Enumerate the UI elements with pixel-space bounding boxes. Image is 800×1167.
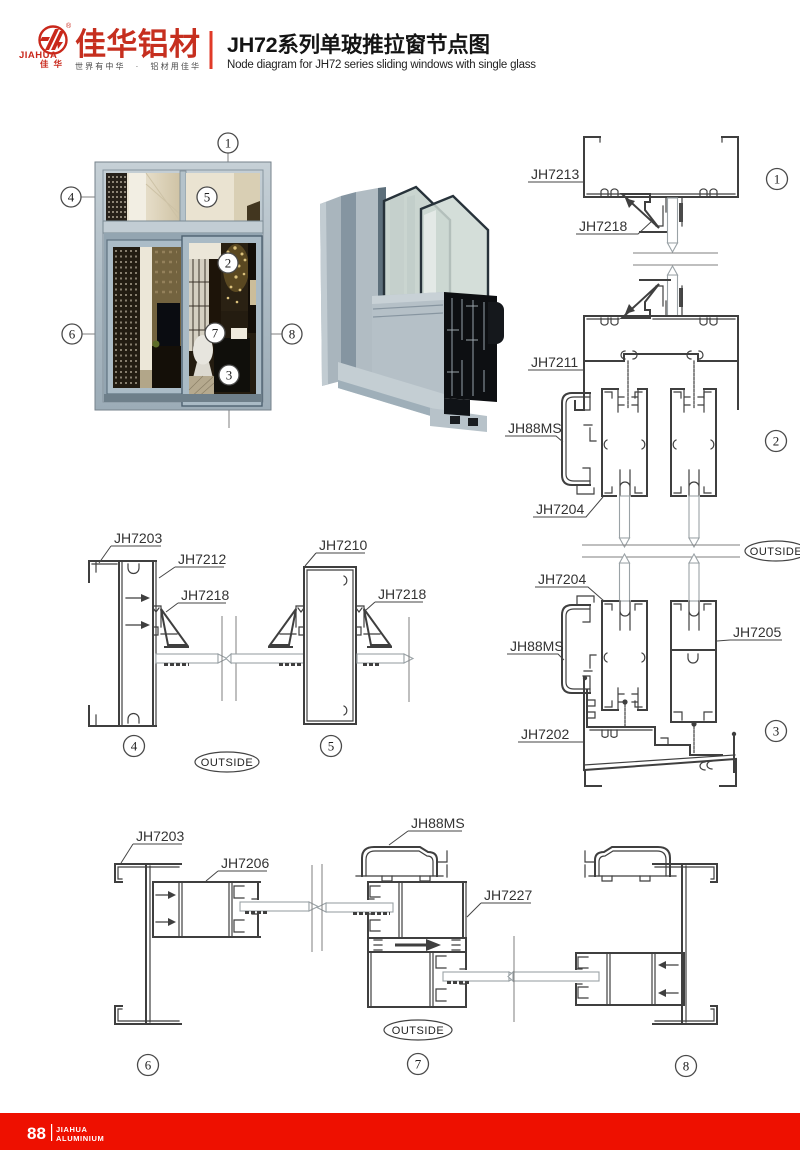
svg-text:JH88MS: JH88MS <box>510 638 564 654</box>
svg-text:7: 7 <box>212 326 219 341</box>
svg-text:JH72系列单玻推拉窗节点图: JH72系列单玻推拉窗节点图 <box>227 32 490 57</box>
svg-text:5: 5 <box>204 190 211 205</box>
svg-text:JH7205: JH7205 <box>733 624 781 640</box>
svg-text:JH7212: JH7212 <box>178 551 226 567</box>
svg-text:3: 3 <box>226 368 233 383</box>
svg-text:JH7210: JH7210 <box>319 537 367 553</box>
svg-text:JH7204: JH7204 <box>538 571 586 587</box>
svg-text:8: 8 <box>289 327 296 342</box>
svg-text:JH7206: JH7206 <box>221 855 269 871</box>
svg-text:JH7202: JH7202 <box>521 726 569 742</box>
svg-text:JH7211: JH7211 <box>531 354 578 370</box>
svg-text:JIAHUA: JIAHUA <box>56 1125 88 1134</box>
svg-text:JH7218: JH7218 <box>181 587 229 603</box>
svg-text:4: 4 <box>131 739 138 754</box>
svg-text:JH7203: JH7203 <box>114 530 162 546</box>
svg-text:佳华铝材: 佳华铝材 <box>75 27 200 62</box>
svg-text:3: 3 <box>773 724 780 739</box>
svg-text:JH88MS: JH88MS <box>508 420 562 436</box>
svg-text:8: 8 <box>683 1059 690 1074</box>
svg-text:2: 2 <box>225 256 232 271</box>
svg-text:佳华: 佳华 <box>40 59 67 69</box>
svg-text:7: 7 <box>415 1057 422 1072</box>
svg-text:OUTSIDE: OUTSIDE <box>392 1025 444 1037</box>
svg-text:1: 1 <box>774 172 781 187</box>
svg-text:JH7227: JH7227 <box>484 887 532 903</box>
svg-text:1: 1 <box>225 136 232 151</box>
svg-text:JH7218: JH7218 <box>579 218 627 234</box>
svg-text:JH7203: JH7203 <box>136 828 184 844</box>
svg-text:JH7204: JH7204 <box>536 501 584 517</box>
svg-text:®: ® <box>66 22 72 30</box>
svg-text:2: 2 <box>773 434 780 449</box>
svg-text:OUTSIDE: OUTSIDE <box>201 757 253 769</box>
svg-text:ALUMINIUM: ALUMINIUM <box>56 1134 104 1143</box>
svg-text:世界有中华 · 铝材用佳华: 世界有中华 · 铝材用佳华 <box>75 61 199 71</box>
svg-text:4: 4 <box>68 190 75 205</box>
svg-text:JH88MS: JH88MS <box>411 815 465 831</box>
svg-text:6: 6 <box>145 1058 152 1073</box>
svg-text:5: 5 <box>328 739 335 754</box>
svg-text:6: 6 <box>69 327 76 342</box>
svg-text:JH7218: JH7218 <box>378 586 426 602</box>
svg-text:88: 88 <box>27 1124 46 1143</box>
svg-text:Node diagram for JH72 series s: Node diagram for JH72 series sliding win… <box>227 59 536 71</box>
svg-text:JH7213: JH7213 <box>531 166 579 182</box>
svg-text:OUTSIDE: OUTSIDE <box>750 546 800 558</box>
